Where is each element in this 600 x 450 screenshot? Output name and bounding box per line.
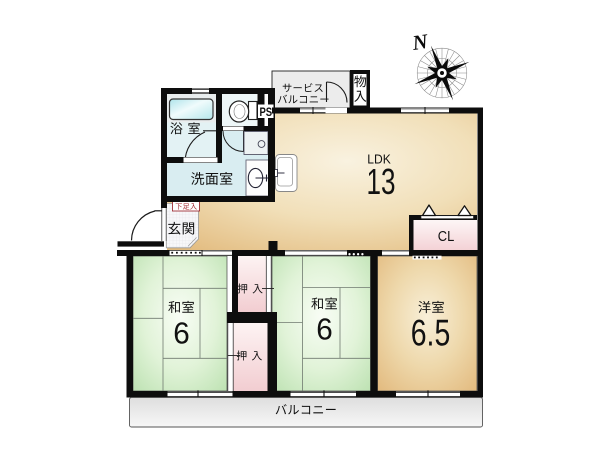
svg-text:CL: CL xyxy=(438,228,455,245)
svg-text:PS: PS xyxy=(259,107,272,119)
svg-text:6: 6 xyxy=(173,316,190,351)
svg-text:13: 13 xyxy=(367,161,396,202)
svg-text:6.5: 6.5 xyxy=(411,313,451,354)
svg-text:6: 6 xyxy=(316,312,333,347)
